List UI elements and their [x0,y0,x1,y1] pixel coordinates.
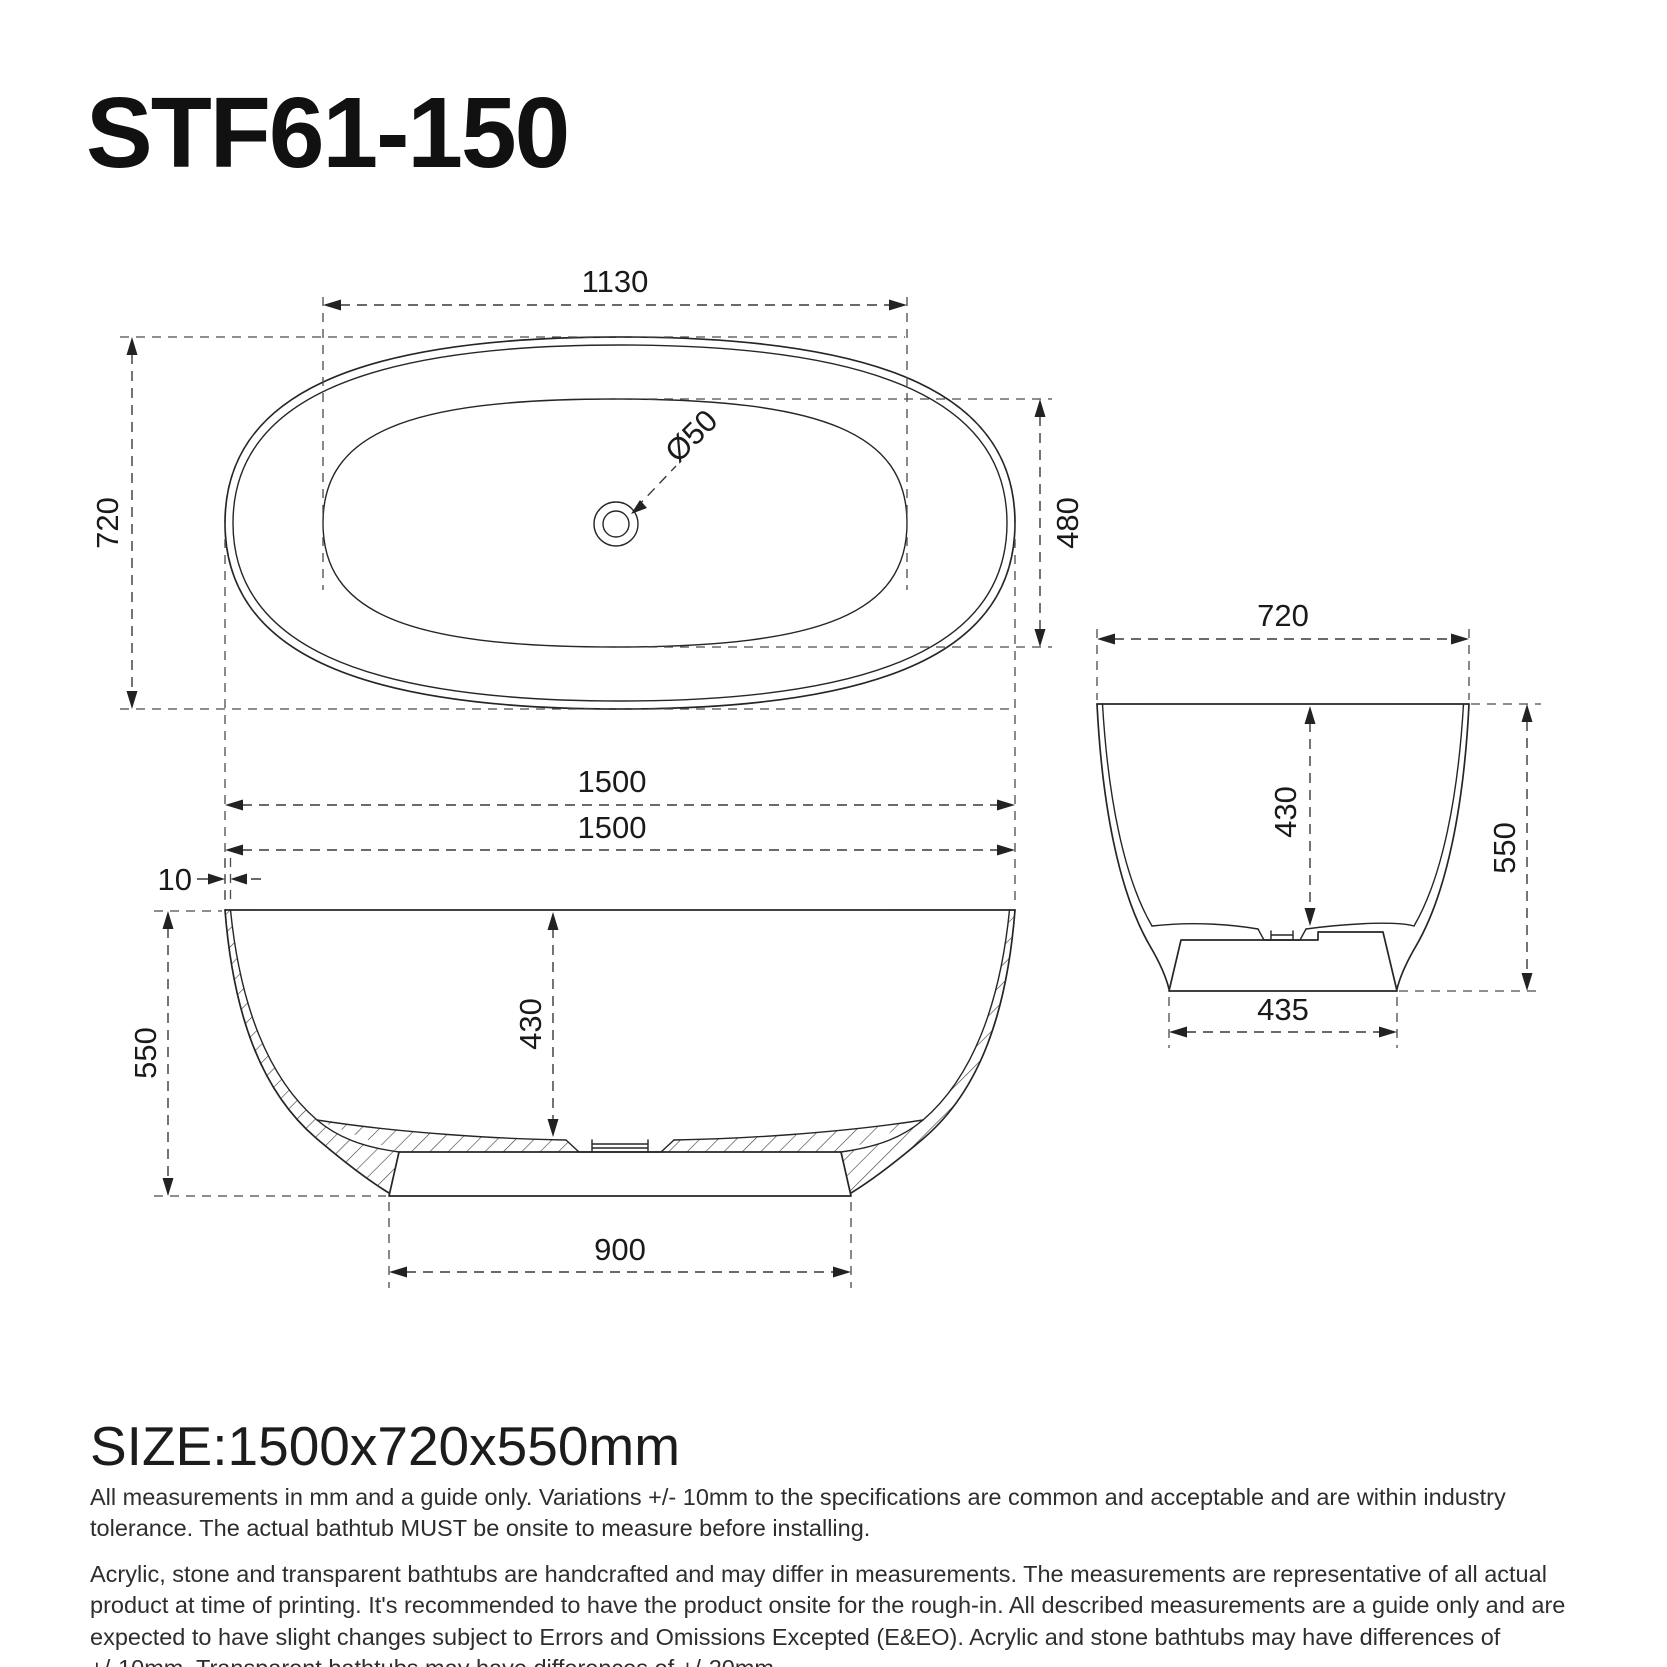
dim-label-720: 720 [90,497,125,549]
dim-front-overall-length: 1500 [225,810,1015,856]
dimension-arrow [225,845,243,856]
dimension-arrow [389,1267,407,1278]
disclaimer-notes: All measurements in mm and a guide only.… [90,1482,1584,1667]
dim-side-overall-width: 720 [1097,598,1469,700]
side-floor [1152,923,1414,929]
dim-label-drain: Ø50 [658,403,724,469]
drain-outer-circle [594,502,638,546]
dimension-arrow [1305,706,1316,724]
dimension-arrow [1379,1027,1397,1038]
dimension-arrow [1035,629,1046,647]
dim-top-overall-length: 1500 [225,523,1015,902]
side-view: 720 430 [1097,598,1541,1048]
side-drain-recess [1258,929,1306,940]
front-base-pedestal [389,1152,851,1196]
dim-label-550-side: 550 [1487,822,1522,874]
size-summary: SIZE:1500x720x550mm [90,1414,680,1478]
dim-label-1130: 1130 [582,264,649,299]
spec-sheet-page: 1130 720 480 [0,0,1667,1667]
dim-front-inner-depth: 430 [513,912,559,1137]
dim-label-900: 900 [594,1232,646,1267]
dimension-arrow [225,800,243,811]
dimension-arrow [548,912,559,930]
disclaimer-paragraph-2: Acrylic, stone and transparent bathtubs … [90,1559,1584,1667]
dim-label-1500-top: 1500 [578,764,647,799]
dim-label-480: 480 [1050,497,1085,549]
dim-side-inner-depth: 430 [1268,706,1316,926]
side-outer-wall-right [1397,704,1469,989]
dim-label-1500-front: 1500 [578,810,647,845]
dimension-arrow [997,800,1015,811]
model-number: STF61-150 [86,76,568,191]
dimension-arrow [323,300,341,311]
dimension-arrow [1305,908,1316,926]
front-hatch-right-wall [841,910,1015,1193]
dimension-arrow [1522,973,1533,991]
front-hatch-left-wall [225,910,399,1193]
dim-top-inner-length: 1130 [323,264,907,590]
dim-side-overall-height: 550 [1399,704,1541,991]
dim-label-430-front: 430 [513,998,548,1050]
side-base-pedestal [1169,932,1397,991]
dimension-arrow [548,1119,559,1137]
dimension-arrow [631,500,647,514]
top-view-outer-rim [225,337,1015,709]
dimension-arrow [208,874,225,885]
front-view: 1500 10 [128,810,1015,1288]
dimension-arrow [1522,704,1533,722]
dimension-arrow [163,911,174,929]
dimension-arrow [1169,1027,1187,1038]
top-view: 1130 720 480 [90,264,1085,902]
dim-label-720-side: 720 [1257,598,1309,633]
dimension-arrow [231,874,248,885]
drain-inner-circle [603,511,629,537]
dimension-arrow [1097,634,1115,645]
dimension-arrow [1035,399,1046,417]
dim-side-base-width: 435 [1169,992,1397,1048]
dim-drain-diameter: Ø50 [631,403,724,514]
dimension-arrow [127,691,138,709]
dimension-arrow [889,300,907,311]
dim-label-550-front: 550 [128,1027,163,1079]
dimension-arrow [833,1267,851,1278]
top-view-basin-outline [323,399,907,647]
dimension-arrow [163,1178,174,1196]
disclaimer-paragraph-1: All measurements in mm and a guide only.… [90,1482,1584,1545]
dim-top-overall-width: 720 [90,337,1015,709]
front-drain-recess [566,1140,674,1152]
side-outer-wall-left [1097,704,1169,989]
dimension-arrow [1451,634,1469,645]
dimension-arrow [127,337,138,355]
dimension-arrow [997,845,1015,856]
front-drain-fitting [592,1140,648,1152]
dim-label-435: 435 [1257,992,1309,1027]
dim-front-rim-thickness: 10 [158,858,266,904]
dim-label-430-side: 430 [1268,786,1303,838]
dim-front-base-length: 900 [389,1202,851,1288]
dim-label-10: 10 [158,862,192,897]
